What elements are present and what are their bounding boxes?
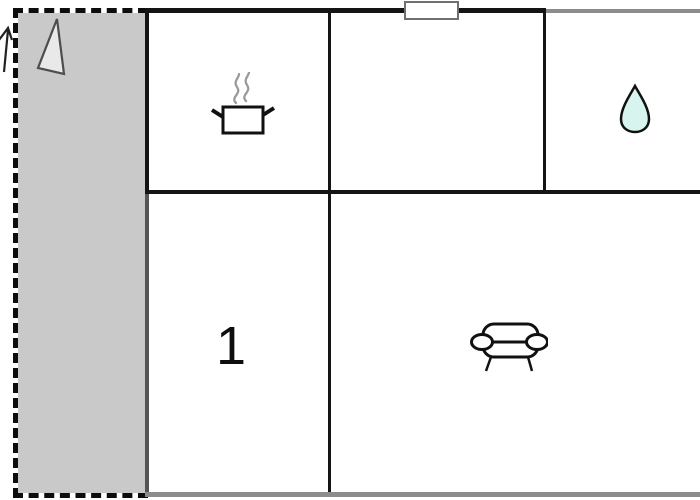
room-kitchen [149, 13, 328, 190]
terrace-area [13, 8, 148, 498]
sofa-icon [468, 319, 548, 375]
window-marker [404, 1, 459, 20]
wall-top [145, 8, 546, 13]
wall-center-vertical [328, 8, 331, 494]
cooking-pot-icon [208, 72, 278, 136]
wall-bottom-gray [145, 492, 700, 497]
wall-top-gray [546, 9, 700, 13]
wall-bathroom-vertical [543, 8, 546, 192]
north-triangle-icon [34, 15, 74, 79]
floor-plan: 1 [0, 0, 700, 500]
wall-left-lower [145, 192, 149, 497]
wall-mid-horizontal [145, 190, 700, 194]
room-bedroom: 1 [149, 194, 328, 492]
bedroom-number-label: 1 [201, 318, 261, 374]
wall-left-upper [145, 8, 149, 192]
room-bathroom [546, 13, 700, 190]
water-drop-icon [618, 83, 652, 135]
room-middle [331, 13, 543, 190]
north-arrow-icon [0, 23, 16, 75]
room-living [331, 194, 700, 492]
